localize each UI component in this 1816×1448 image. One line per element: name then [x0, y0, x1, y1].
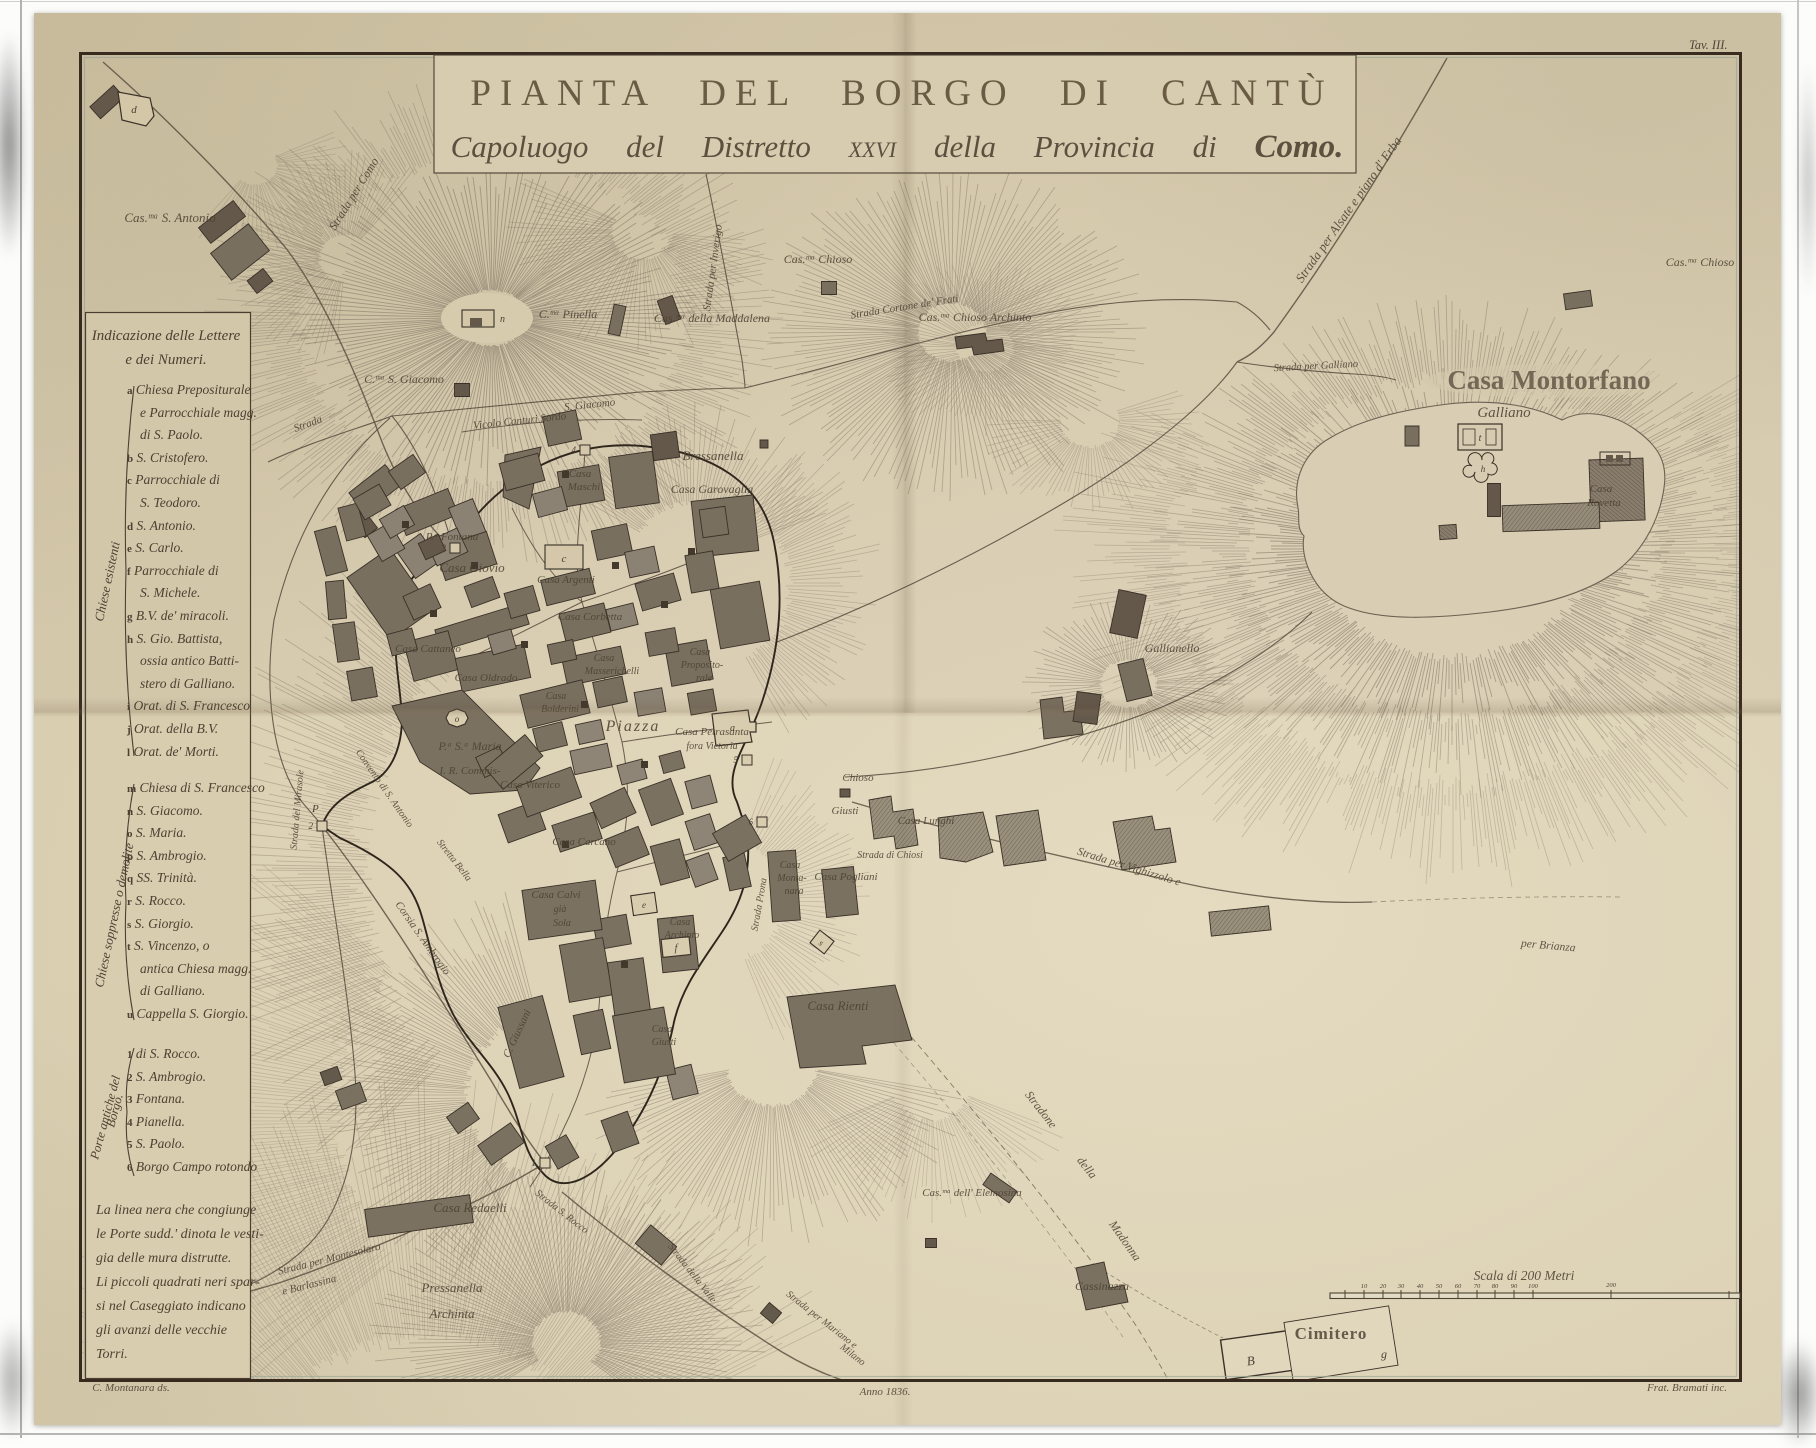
svg-text:Madonna: Madonna [1106, 1217, 1144, 1264]
svg-text:fora Victoria: fora Victoria [686, 741, 737, 752]
svg-text:t S. Vincenzo, o: t S. Vincenzo, o [127, 938, 210, 953]
svg-text:1: 1 [532, 1158, 537, 1168]
svg-text:le Porte sudd.' dinota le vest: le Porte sudd.' dinota le vesti- [96, 1227, 264, 1242]
svg-text:40: 40 [1417, 1283, 1424, 1290]
svg-text:P.ᵃ S.ᵃ Maria: P.ᵃ S.ᵃ Maria [437, 739, 501, 753]
svg-text:Stretta Bella: Stretta Bella [434, 837, 473, 883]
svg-text:Strada di Chiosi: Strada di Chiosi [857, 850, 923, 861]
svg-text:q SS. Trinità.: q SS. Trinità. [127, 870, 197, 885]
svg-text:nara: nara [785, 886, 804, 897]
svg-text:l Orat. de' Morti.: l Orat. de' Morti. [127, 744, 219, 759]
svg-text:Casa Redaelli: Casa Redaelli [433, 1200, 507, 1215]
svg-text:Casa Petrasanta: Casa Petrasanta [675, 726, 749, 738]
svg-text:Torri.: Torri. [96, 1347, 128, 1362]
svg-text:Archinta: Archinta [428, 1306, 475, 1321]
svg-text:u Cappella S. Giorgio.: u Cappella S. Giorgio. [127, 1006, 249, 1021]
svg-text:Strada Prona: Strada Prona [749, 877, 769, 932]
svg-text:gia delle mura distrutte.: gia delle mura distrutte. [96, 1251, 231, 1266]
svg-text:Cas.ᵐᵃ dell' Elemosina: Cas.ᵐᵃ dell' Elemosina [922, 1187, 1022, 1199]
svg-text:Casa Pogliani: Casa Pogliani [814, 871, 877, 883]
svg-text:Li piccoli quadrati neri spar-: Li piccoli quadrati neri spar- [95, 1275, 260, 1290]
svg-text:Strada della Valle: Strada della Valle [666, 1242, 719, 1306]
svg-text:Casa Viterico: Casa Viterico [500, 779, 560, 791]
svg-text:200: 200 [1606, 1282, 1617, 1289]
svg-text:3 Fontana.: 3 Fontana. [127, 1091, 185, 1106]
svg-text:della: della [1074, 1154, 1100, 1182]
svg-text:I. R. Commis-: I. R. Commis- [438, 765, 500, 777]
svg-text:Archinto: Archinto [664, 930, 700, 941]
svg-text:2 S. Ambrogio.: 2 S. Ambrogio. [127, 1069, 206, 1084]
svg-text:Casa: Casa [652, 1024, 673, 1035]
svg-text:r S. Rocco.: r S. Rocco. [127, 893, 186, 908]
svg-text:Monta-: Monta- [776, 873, 806, 884]
svg-text:di Galliano.: di Galliano. [140, 983, 205, 998]
svg-text:e Barlassina: e Barlassina [281, 1272, 338, 1297]
svg-text:o S. Maria.: o S. Maria. [127, 825, 187, 840]
svg-text:30: 30 [1397, 1283, 1405, 1290]
svg-text:50: 50 [1436, 1283, 1443, 1290]
svg-text:70: 70 [1474, 1283, 1481, 1290]
svg-text:90: 90 [1511, 1283, 1518, 1290]
svg-text:Cassinazza: Cassinazza [1075, 1279, 1129, 1293]
svg-text:Cimitero: Cimitero [1295, 1324, 1368, 1343]
svg-text:C. Giussani: C. Giussani [501, 1008, 534, 1060]
svg-text:5 S. Paolo.: 5 S. Paolo. [127, 1136, 185, 1151]
svg-text:2: 2 [309, 821, 314, 831]
svg-text:100: 100 [1528, 1283, 1539, 1290]
svg-text:Convento di S. Antonio: Convento di S. Antonio [353, 747, 415, 829]
svg-text:6 Borgo Campo rotondo: 6 Borgo Campo rotondo [127, 1159, 257, 1174]
svg-text:Sola: Sola [553, 918, 571, 929]
svg-text:6: 6 [749, 817, 754, 827]
svg-text:Strada per Mariano e: Strada per Mariano e [784, 1289, 860, 1352]
svg-text:j Orat. della B.V.: j Orat. della B.V. [126, 721, 218, 736]
svg-text:n S. Giacomo.: n S. Giacomo. [127, 803, 203, 818]
svg-text:Stradone: Stradone [1022, 1088, 1060, 1131]
svg-text:si nel Caseggiato indicano: si nel Caseggiato indicano [96, 1299, 246, 1314]
svg-text:Strada S. Rocco: Strada S. Rocco [533, 1188, 590, 1236]
svg-text:Strada del Mirasole: Strada del Mirasole [289, 769, 307, 850]
svg-text:Chioso: Chioso [842, 772, 874, 784]
svg-text:Casa: Casa [780, 860, 801, 871]
svg-text:s S. Giorgio.: s S. Giorgio. [127, 916, 194, 931]
svg-text:Strada per Vighizzolo e: Strada per Vighizzolo e [1076, 846, 1182, 889]
svg-text:10: 10 [1361, 1283, 1368, 1290]
svg-text:Corsia S. Ambrogio: Corsia S. Ambrogio [393, 899, 453, 978]
svg-text:P: P [311, 803, 319, 815]
svg-text:4 Pianella.: 4 Pianella. [127, 1114, 185, 1129]
svg-text:Giusti: Giusti [652, 1037, 677, 1048]
svg-text:p S. Ambrogio.: p S. Ambrogio. [127, 848, 207, 863]
svg-text:Piazza: Piazza [605, 718, 661, 735]
svg-text:Frat. Bramati inc.: Frat. Bramati inc. [1646, 1382, 1727, 1394]
svg-text:20: 20 [1380, 1283, 1387, 1290]
svg-text:80: 80 [1492, 1283, 1499, 1290]
svg-text:1 di S. Rocco.: 1 di S. Rocco. [127, 1046, 200, 1061]
svg-text:m Chiesa di S. Francesco: m Chiesa di S. Francesco [127, 780, 265, 795]
svg-text:Casa Calvi: Casa Calvi [531, 889, 580, 901]
svg-text:Strada per Montesolaro: Strada per Montesolaro [277, 1240, 383, 1277]
svg-text:già: già [554, 904, 567, 915]
svg-text:C. Montanara ds.: C. Montanara ds. [92, 1382, 170, 1394]
svg-text:La linea nera che congiunge: La linea nera che congiunge [95, 1203, 256, 1218]
svg-text:per Brianza: per Brianza [1520, 938, 1577, 955]
svg-text:5: 5 [734, 755, 739, 765]
svg-text:Giusti: Giusti [832, 805, 859, 817]
svg-text:gli avanzi delle vecchie: gli avanzi delle vecchie [96, 1323, 227, 1338]
svg-text:Casa Rienti: Casa Rienti [807, 998, 868, 1013]
svg-text:60: 60 [1455, 1283, 1462, 1290]
svg-text:antica Chiesa magg.: antica Chiesa magg. [140, 961, 251, 976]
svg-text:Scala di 200 Metri: Scala di 200 Metri [1474, 1268, 1575, 1283]
svg-text:Casa Carcano: Casa Carcano [552, 836, 616, 848]
svg-text:Casa: Casa [670, 917, 691, 928]
svg-text:Pressanella: Pressanella [421, 1280, 483, 1295]
